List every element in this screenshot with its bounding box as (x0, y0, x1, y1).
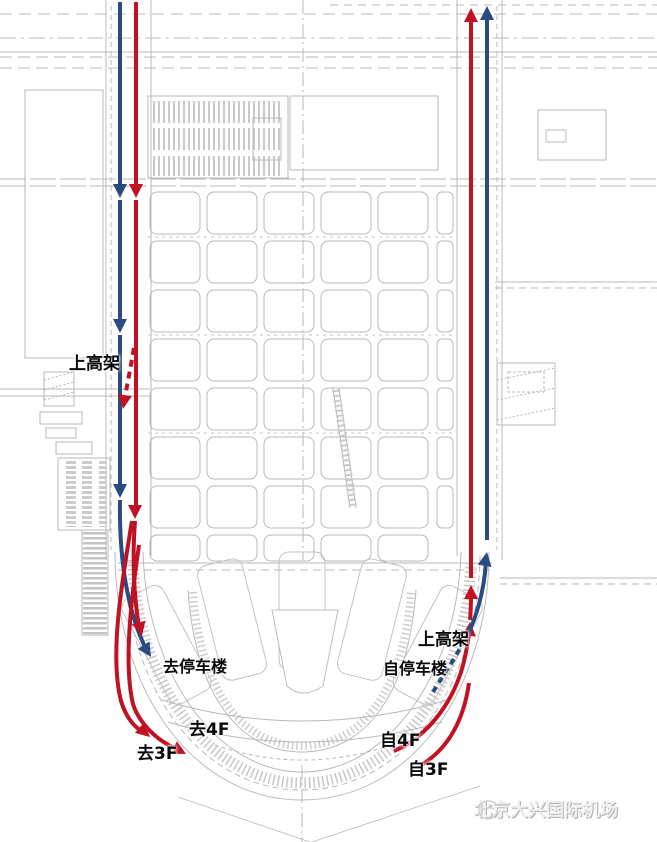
route-red-inbound (116, 2, 177, 749)
label-viaduct-up-left: 上高架 (69, 356, 120, 373)
phoenix-logo-icon (474, 796, 502, 824)
label-from-4f: 自4F (380, 733, 420, 750)
label-to-parking-building: 去停车楼 (163, 659, 227, 675)
label-from-3f: 自3F (408, 762, 448, 779)
route-blue-outbound (433, 16, 487, 692)
label-viaduct-up-right: 上高架 (418, 632, 469, 649)
airport-watermark: 北京大兴国际机场 (474, 796, 618, 822)
route-overlay (0, 0, 657, 842)
route-red-viaduct-ramp-left (124, 348, 134, 401)
label-to-3f: 去3F (137, 746, 177, 763)
label-to-4f: 去4F (189, 722, 229, 739)
label-from-parking-building: 自停车楼 (383, 661, 447, 677)
route-red-outbound (394, 18, 471, 767)
airport-route-map: 上高架 去停车楼 去4F 去3F 上高架 自停车楼 自4F 自3F 北京大兴国际… (0, 0, 657, 842)
